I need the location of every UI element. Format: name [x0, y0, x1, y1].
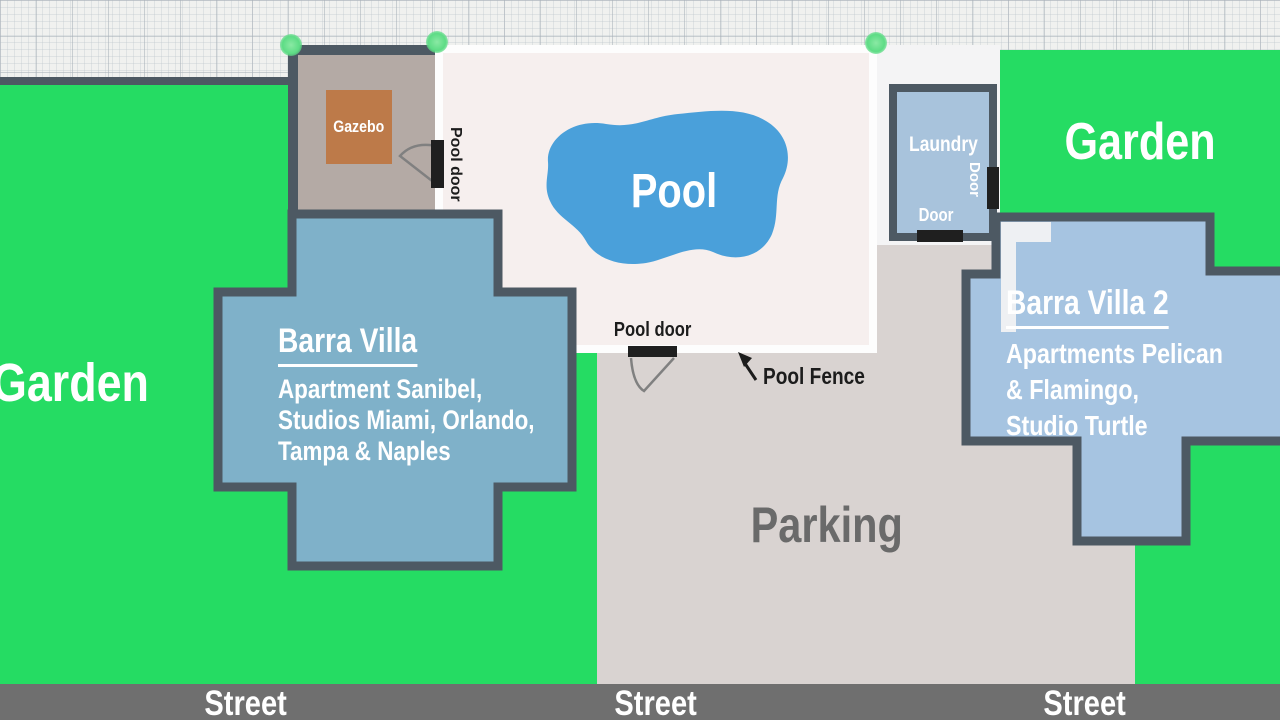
barra-villa-text-block: Barra Villa Apartment Sanibel, Studios M…: [278, 322, 587, 467]
gazebo-structure: Gazebo: [326, 90, 392, 164]
laundry-door-right: [987, 167, 999, 209]
garden-right-label: Garden: [990, 112, 1280, 172]
barra-villa-2-text-block: Barra Villa 2 Apartments Pelican & Flami…: [1006, 284, 1267, 444]
barra-villa-line-3: Tampa & Naples: [278, 436, 451, 467]
street-label-2: Street: [556, 684, 756, 720]
laundry-door-bottom: [917, 230, 963, 242]
pool-door-parking-label: Pool door: [593, 319, 713, 342]
pool-door-parking: [628, 346, 677, 357]
pool-door-gazebo: [431, 140, 444, 188]
barra-villa-2-title: Barra Villa 2: [1006, 284, 1169, 329]
pool-label: Pool: [524, 164, 824, 219]
bush-icon: [426, 31, 448, 53]
barra-villa-line-1: Apartment Sanibel,: [278, 374, 482, 405]
pool-door-gazebo-label: Pool door: [446, 127, 464, 199]
barra-villa-line-2: Studios Miami, Orlando,: [278, 405, 534, 436]
barra-villa-2-line-1: Apartments Pelican: [1006, 336, 1223, 372]
pool-fence-label: Pool Fence: [763, 363, 886, 390]
parking-label: Parking: [677, 496, 977, 554]
barra-villa-2-line-2: & Flamingo,: [1006, 372, 1139, 408]
gazebo-label: Gazebo: [334, 117, 385, 137]
bush-icon: [280, 34, 302, 56]
site-plan-canvas: Gazebo Garden Garden Pool Parking Laundr…: [0, 0, 1280, 720]
street-label-3: Street: [985, 684, 1185, 720]
garden-left-label: Garden: [0, 352, 181, 414]
barra-villa-2-line-3: Studio Turtle: [1006, 408, 1148, 444]
street-label-1: Street: [146, 684, 346, 720]
barra-villa-title: Barra Villa: [278, 322, 417, 367]
laundry-label: Laundry: [889, 133, 997, 157]
bush-icon: [865, 32, 887, 54]
laundry-door-right-label: Door: [966, 162, 983, 214]
